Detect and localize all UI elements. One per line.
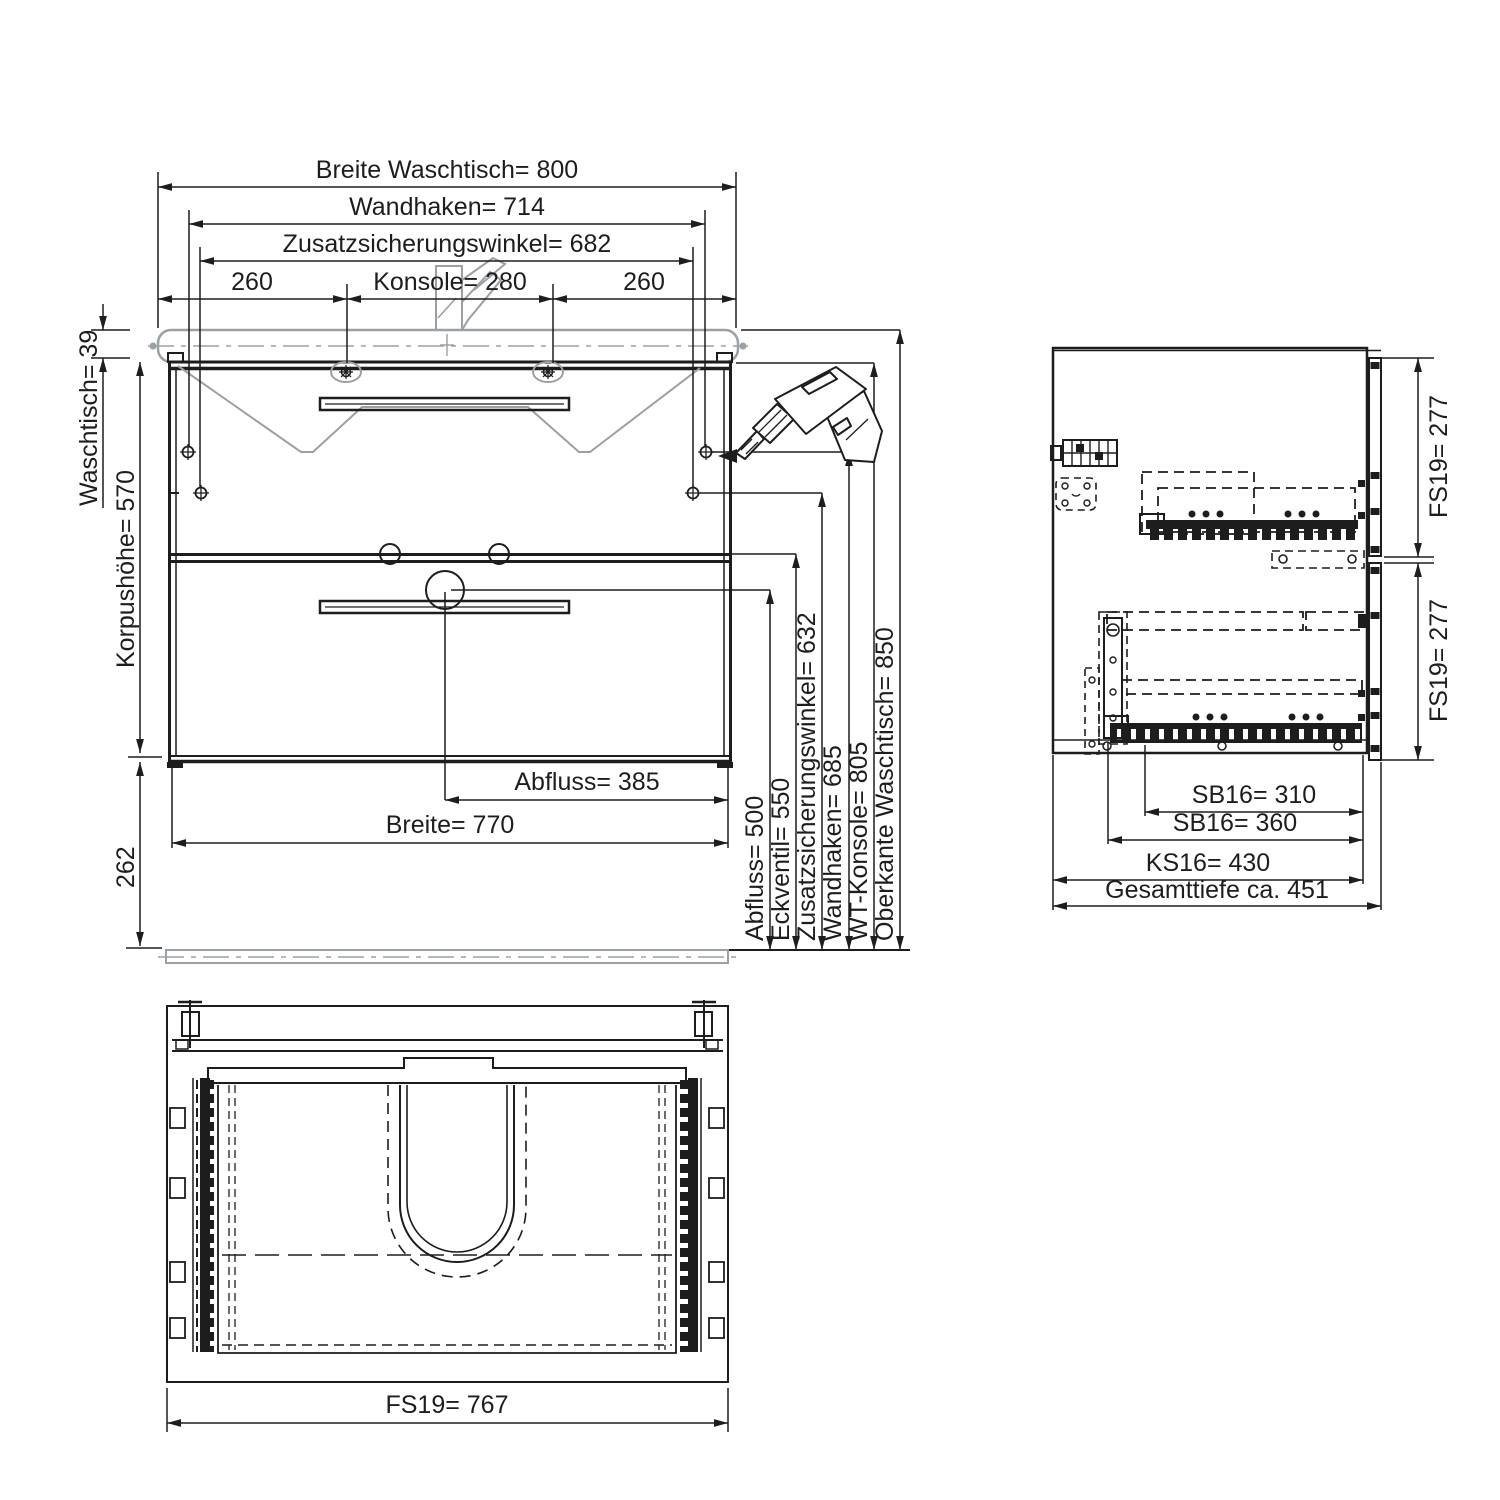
cabinet-front [167, 353, 733, 768]
dim-fs19-277-top: FS19= 277 [1425, 395, 1453, 518]
siphon-cutout [388, 1085, 526, 1277]
hanger-plate [1056, 478, 1096, 510]
dim-gesamttiefe-451: Gesamttiefe ca. 451 [1105, 876, 1329, 904]
console-mount-hole-right [533, 362, 563, 382]
side-view: FS19= 277 FS19= 277 SB16= 310 SB16= 360 … [1051, 348, 1453, 910]
technical-drawing-page: Breite Waschtisch= 800 Wandhaken= 714 Zu… [0, 0, 1500, 1500]
dim-262: 262 [112, 846, 140, 888]
dim-sb16-360: SB16= 360 [1173, 809, 1297, 837]
upper-drawer-slide [1140, 472, 1358, 540]
drill-icon [718, 367, 882, 463]
console-mount-hole-left [331, 362, 361, 382]
dim-wandhaken-685: Wandhaken= 685 [819, 745, 847, 941]
dim-260-left: 260 [231, 268, 273, 296]
dim-fs19-277-bottom: FS19= 277 [1425, 599, 1453, 722]
dim-waschtisch-39: Waschtisch= 39 [75, 330, 103, 506]
drawer-handle-top[interactable] [320, 398, 569, 410]
floor-strip [158, 950, 740, 963]
dim-wt-konsole-805: WT-Konsole= 805 [845, 742, 873, 941]
dim-zusatzwinkel-632: Zusatzsicherungswinkel= 632 [793, 612, 821, 941]
dim-korpushoehe-570: Korpushöhe= 570 [112, 470, 140, 668]
washbasin-outline [148, 330, 748, 362]
dim-breite-waschtisch: Breite Waschtisch= 800 [316, 156, 578, 184]
corner-hardware-right [692, 1000, 718, 1049]
dim-oberkante-850: Oberkante Waschtisch= 850 [871, 627, 899, 941]
lower-drawer-slide [1085, 612, 1367, 754]
dim-sb16-310: SB16= 310 [1192, 781, 1316, 809]
dim-konsole-280: Konsole= 280 [373, 268, 527, 296]
side-carcass [1053, 348, 1367, 753]
dim-abfluss-500: Abfluss= 500 [741, 796, 769, 941]
dim-abfluss-385: Abfluss= 385 [514, 768, 659, 796]
top-view-front-panel [172, 1040, 723, 1083]
front-view: Breite Waschtisch= 800 Wandhaken= 714 Zu… [75, 156, 910, 963]
mid-rail-bracket [1272, 551, 1364, 568]
top-view: FS19= 767 [167, 1000, 728, 1432]
wall-hook-holes [171, 444, 714, 501]
dim-wandhaken-714: Wandhaken= 714 [349, 193, 545, 221]
wall-bracket [1051, 440, 1117, 466]
top-view-drawer-box [218, 1085, 676, 1353]
dim-zusatzwinkel-682: Zusatzsicherungswinkel= 682 [283, 230, 612, 258]
dim-260-right: 260 [623, 268, 665, 296]
top-view-outline [167, 1006, 728, 1382]
corner-hardware-left [176, 1000, 202, 1049]
dim-eckventil-550: Eckventil= 550 [767, 778, 795, 941]
vanity-dimension-drawing: Breite Waschtisch= 800 Wandhaken= 714 Zu… [0, 0, 1500, 1500]
dim-breite-770: Breite= 770 [386, 811, 515, 839]
front-bottom-dimensions [172, 592, 728, 848]
top-view-rails [170, 1078, 724, 1352]
dim-fs19-767: FS19= 767 [385, 1391, 508, 1419]
dim-ks16-430: KS16= 430 [1146, 849, 1270, 877]
side-drawer-fronts [1358, 358, 1381, 760]
